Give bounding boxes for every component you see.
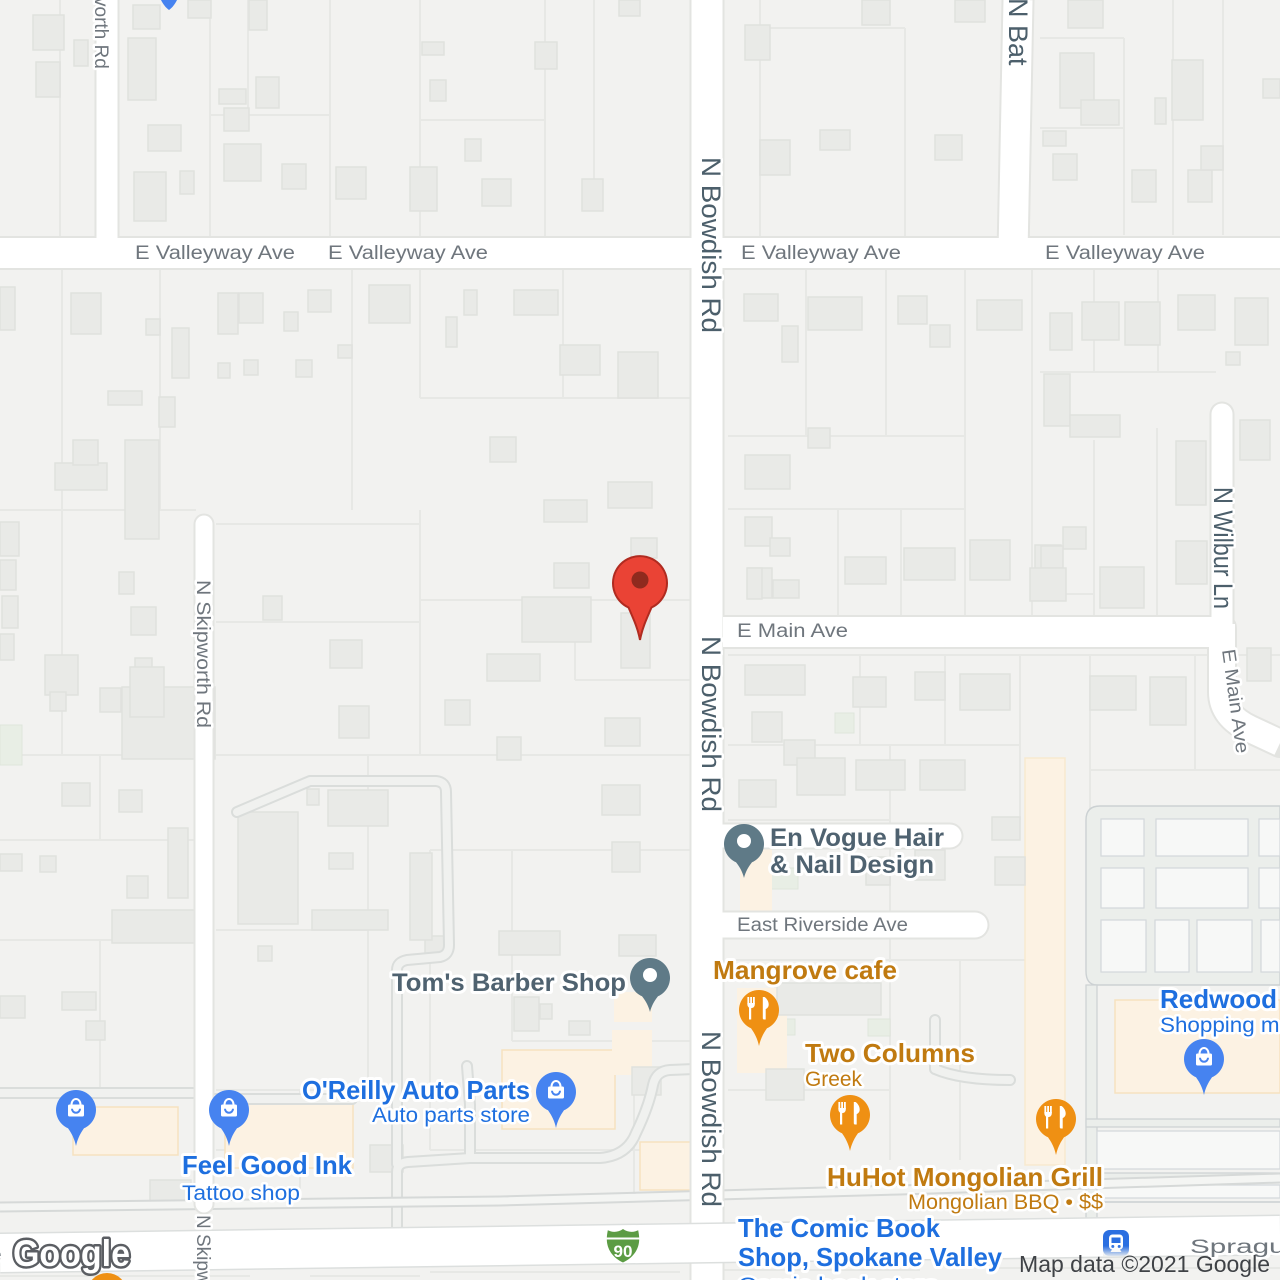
svg-text:Mangrove cafe: Mangrove cafe: [713, 955, 897, 985]
svg-text:E Valleyway Ave: E Valleyway Ave: [741, 243, 901, 264]
svg-text:E Valleyway Ave: E Valleyway Ave: [1045, 243, 1205, 264]
svg-text:East Riverside Ave: East Riverside Ave: [737, 915, 908, 936]
svg-text:& Nail Design: & Nail Design: [770, 851, 934, 879]
svg-text:N Wilbur Ln: N Wilbur Ln: [1208, 487, 1238, 609]
svg-text:Redwood: Redwood: [1160, 984, 1277, 1014]
svg-text:Greek: Greek: [805, 1068, 862, 1091]
svg-text:E Valleyway Ave: E Valleyway Ave: [328, 243, 488, 264]
svg-text:Tattoo shop: Tattoo shop: [182, 1182, 300, 1205]
svg-text:N Bat: N Bat: [1003, 0, 1033, 66]
svg-text:En Vogue Hair: En Vogue Hair: [770, 824, 944, 852]
svg-text:N Skipworth Rd: N Skipworth Rd: [192, 580, 213, 728]
svg-text:N Bowdish Rd: N Bowdish Rd: [696, 157, 726, 333]
svg-text:Shop, Spokane Valley: Shop, Spokane Valley: [738, 1242, 1003, 1272]
svg-text:N Skipw: N Skipw: [192, 1215, 213, 1280]
svg-text:Shopping mall: Shopping mall: [1160, 1014, 1280, 1037]
svg-text:N Bowdish Rd: N Bowdish Rd: [696, 636, 726, 812]
svg-text:The Comic Book: The Comic Book: [738, 1213, 941, 1243]
svg-text:e: e: [0, 1245, 2, 1266]
svg-text:Tom's Barber Shop: Tom's Barber Shop: [392, 969, 626, 997]
svg-text:E Main Ave: E Main Ave: [737, 621, 848, 642]
svg-text:Google: Google: [13, 1233, 130, 1274]
svg-text:Two Columns: Two Columns: [805, 1038, 975, 1068]
svg-text:HuHot Mongolian Grill: HuHot Mongolian Grill: [827, 1162, 1103, 1192]
svg-text:E Valleyway Ave: E Valleyway Ave: [135, 243, 295, 264]
svg-text:90: 90: [614, 1242, 633, 1261]
svg-text:Map data ©2021 Google: Map data ©2021 Google: [1019, 1251, 1270, 1277]
svg-text:N Bowdish Rd: N Bowdish Rd: [696, 1031, 726, 1207]
svg-text:Feel Good Ink: Feel Good Ink: [182, 1150, 353, 1180]
svg-text:O'Reilly Auto Parts: O'Reilly Auto Parts: [302, 1075, 530, 1105]
svg-text:Comic book store: Comic book store: [738, 1274, 938, 1280]
svg-text:vorth Rd: vorth Rd: [90, 0, 111, 69]
svg-text:Mongolian BBQ • $$: Mongolian BBQ • $$: [908, 1191, 1103, 1214]
svg-text:Auto parts store: Auto parts store: [372, 1104, 530, 1127]
